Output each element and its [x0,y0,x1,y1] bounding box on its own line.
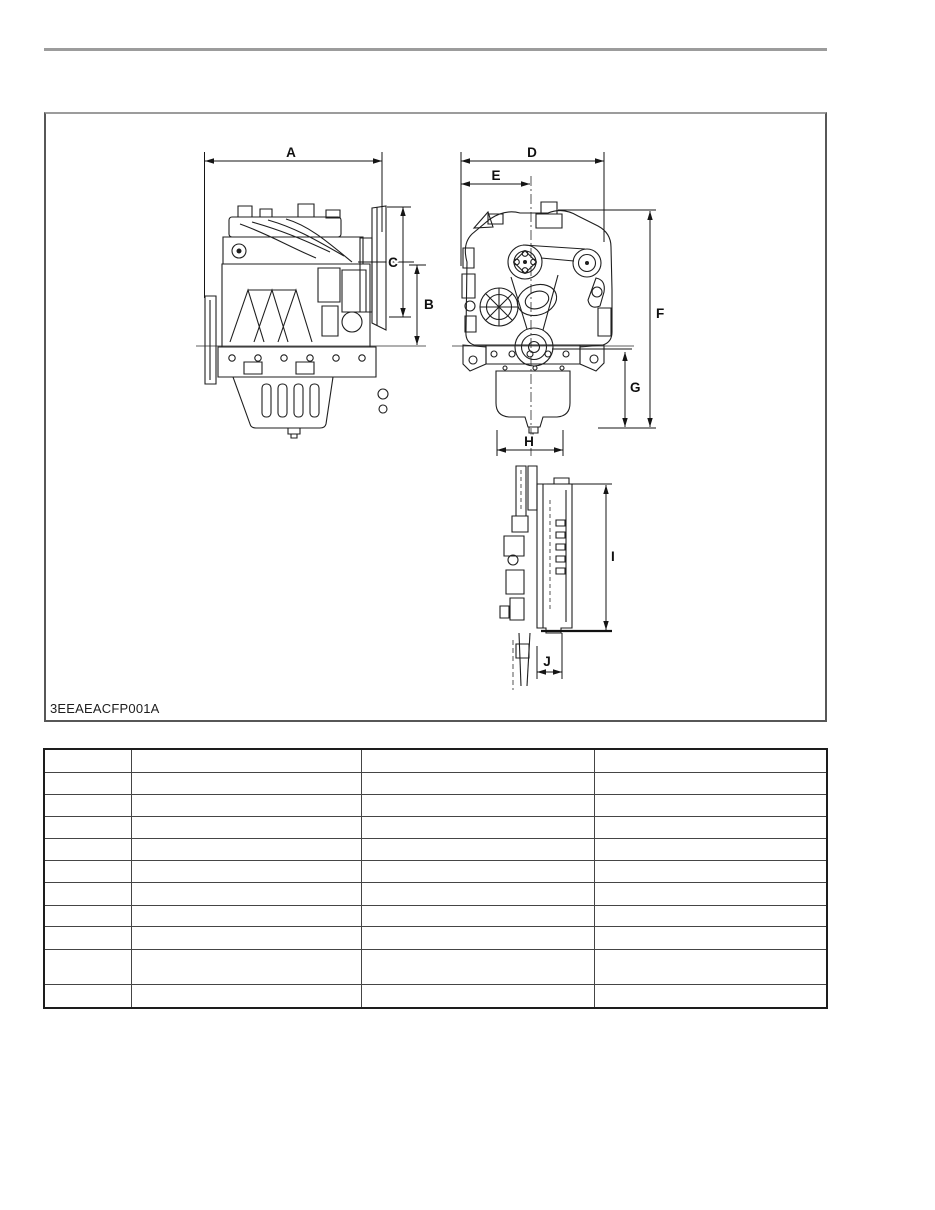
table-cell [594,984,827,1008]
table-cell [361,860,594,882]
table-cell [594,860,827,882]
table-cell [361,984,594,1008]
table-cell [361,772,594,794]
table-cell [131,860,361,882]
table-cell [131,905,361,926]
spec-table [43,748,828,1009]
table-row [44,905,827,926]
table-cell [361,794,594,816]
table-cell [594,926,827,949]
table-row [44,984,827,1008]
table-cell [361,838,594,860]
table-cell [594,816,827,838]
table-cell [44,860,131,882]
table-cell [361,882,594,905]
table-cell [131,926,361,949]
table-row [44,838,827,860]
table-cell [594,749,827,772]
table-row [44,882,827,905]
table-cell [361,949,594,984]
table-cell [131,816,361,838]
table-cell [44,816,131,838]
table-cell [131,949,361,984]
table-cell [44,984,131,1008]
table-cell [131,882,361,905]
table-cell [594,905,827,926]
table-cell [594,882,827,905]
table-cell [44,905,131,926]
table-row [44,772,827,794]
table-row [44,860,827,882]
manual-page: { "document": { "figure": { "code": "3EE… [0,0,935,1210]
table-cell [361,905,594,926]
table-cell [44,949,131,984]
table-cell [131,772,361,794]
table-cell [131,794,361,816]
figure-panel: 3EEAEACFP001A [44,112,827,722]
table-cell [44,838,131,860]
table-row [44,816,827,838]
table-row [44,926,827,949]
table-cell [44,794,131,816]
table-cell [361,926,594,949]
table-cell [131,984,361,1008]
table-cell [594,772,827,794]
table-cell [44,926,131,949]
table-cell [594,794,827,816]
table-cell [44,882,131,905]
table-cell [44,749,131,772]
table-cell [594,949,827,984]
table-cell [594,838,827,860]
table-cell [361,749,594,772]
figure-code: 3EEAEACFP001A [50,701,160,716]
table-row [44,794,827,816]
table-row [44,949,827,984]
table-cell [361,816,594,838]
table-row [44,749,827,772]
table-cell [131,749,361,772]
table-cell [131,838,361,860]
top-rule [44,48,827,51]
table-cell [44,772,131,794]
